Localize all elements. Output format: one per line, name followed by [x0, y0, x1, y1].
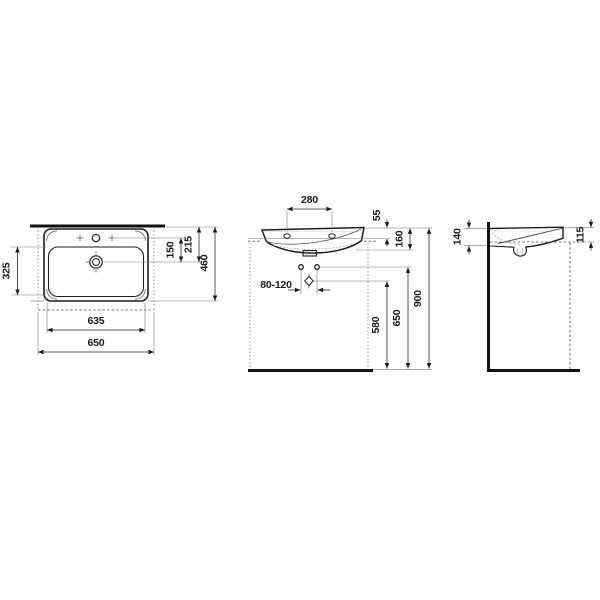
dim-label-580: 580: [370, 316, 382, 333]
technical-drawing-page: 325 150 215 460 635 650: [0, 0, 600, 600]
hidden-edges-front: [248, 241, 378, 369]
dim-label-140: 140: [452, 228, 464, 245]
dim-label-150: 150: [165, 241, 177, 258]
front-view: 280 80-120: [248, 194, 432, 371]
dim-drain-from-wall: 215: [183, 227, 200, 262]
dim-bolt-spacing: 80-120: [260, 270, 330, 294]
dim-label-635: 635: [88, 315, 105, 327]
top-view: 325 150 215 460 635 650: [1, 226, 219, 355]
dim-tap-hole-spacing: 280: [287, 194, 332, 232]
dim-label-215: 215: [183, 236, 195, 253]
dim-front-height: 115: [565, 219, 594, 251]
dim-label-115: 115: [575, 226, 587, 243]
hidden-edges-side: [490, 242, 577, 370]
dim-bolt-height: 650: [391, 267, 408, 368]
dim-label-650-height: 650: [391, 309, 403, 326]
dim-inner-width: 635: [47, 303, 145, 333]
basin-front-details: [265, 229, 361, 256]
optional-tap-hole-marks: [77, 235, 116, 242]
dim-label-650: 650: [88, 337, 105, 349]
dim-label-900: 900: [412, 290, 424, 307]
dim-outlet-height: 580: [370, 282, 387, 369]
tap-hole: [92, 234, 99, 241]
fixing-bolts: [299, 265, 411, 270]
dim-bowl-depth: 325: [1, 247, 18, 295]
dim-label-80-120: 80-120: [260, 279, 292, 291]
dim-tap-to-drain: 150: [165, 238, 182, 262]
dim-label-55: 55: [371, 210, 383, 222]
dim-label-160: 160: [394, 230, 406, 247]
drain-hole: [86, 252, 103, 273]
drain-trap-side: [514, 247, 527, 256]
dim-back-height: 140: [452, 220, 488, 255]
dim-label-460: 460: [199, 254, 211, 271]
dim-label-325: 325: [1, 262, 13, 279]
dim-rim-height: 900: [412, 228, 429, 368]
side-view: 140 115: [452, 219, 595, 371]
drawing-canvas: 325 150 215 460 635 650: [0, 0, 600, 600]
dim-label-280: 280: [301, 194, 318, 206]
dim-total-depth: 460: [199, 227, 216, 301]
drain-trap-symbol: [305, 274, 390, 289]
dim-basin-height: 160: [394, 228, 411, 249]
